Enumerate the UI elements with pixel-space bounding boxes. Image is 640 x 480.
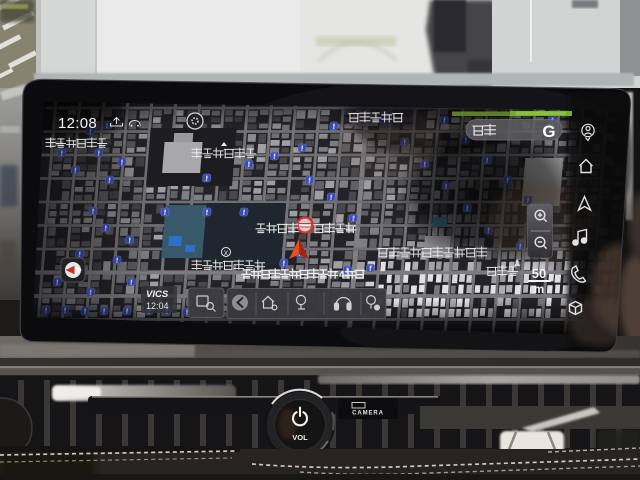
svg-text:m: m bbox=[534, 284, 544, 296]
svg-text:X: X bbox=[224, 251, 229, 258]
svg-text:CAMERA: CAMERA bbox=[352, 411, 384, 417]
svg-text:VOL: VOL bbox=[292, 433, 308, 442]
svg-text:4: 4 bbox=[339, 270, 345, 281]
svg-text:12:08: 12:08 bbox=[58, 115, 97, 132]
svg-text:50: 50 bbox=[532, 266, 546, 281]
svg-text:G: G bbox=[542, 122, 555, 141]
svg-text:12:04: 12:04 bbox=[146, 301, 169, 311]
svg-text:VICS: VICS bbox=[146, 289, 169, 300]
